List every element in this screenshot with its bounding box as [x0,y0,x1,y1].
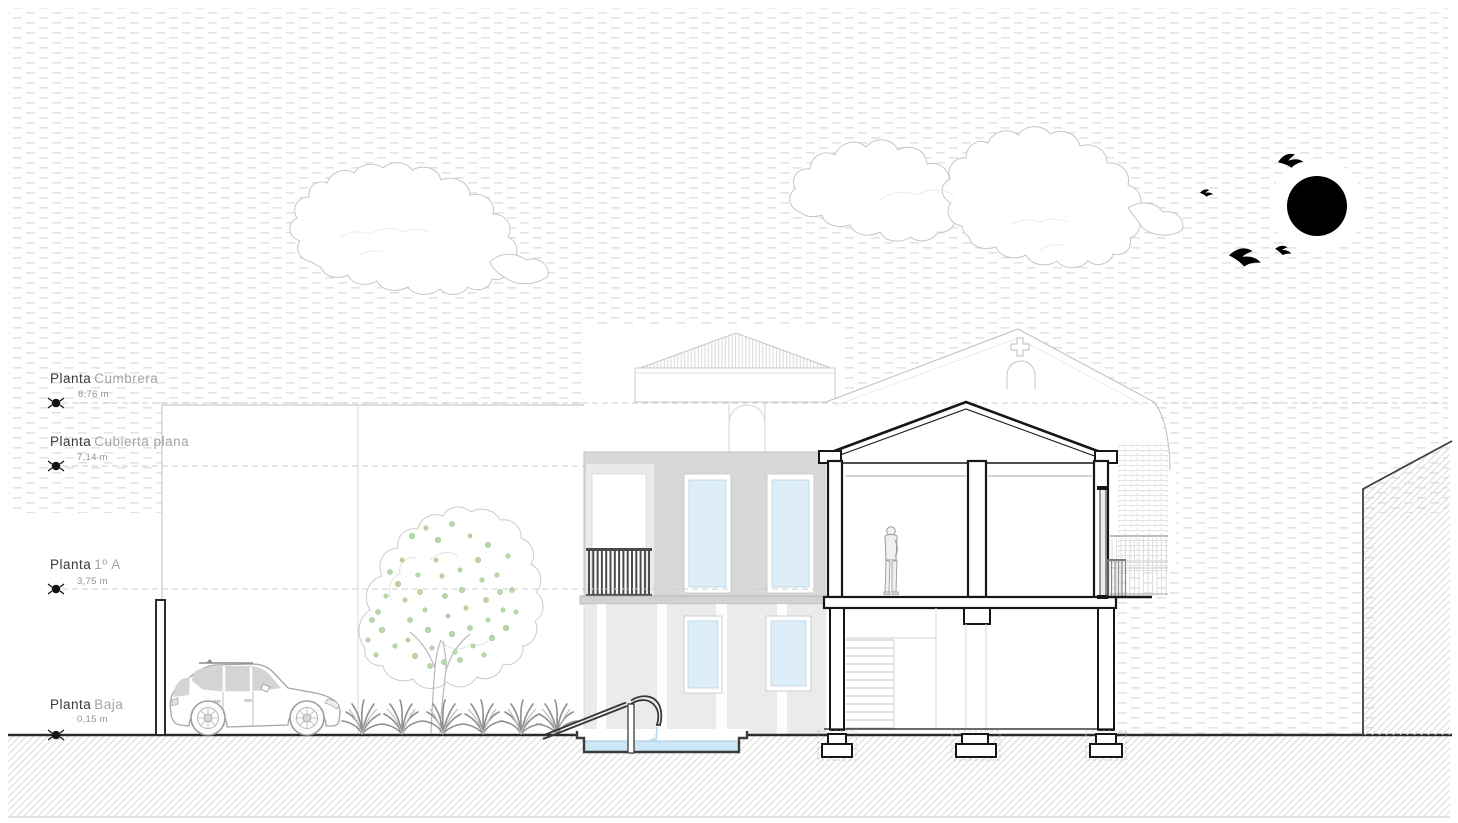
pool-water [585,741,738,752]
level-name: Planta [50,371,91,386]
level-label-baja: PlantaBaja [50,697,123,712]
level-marker [48,584,64,594]
car-wheel [290,701,324,735]
level-elevation: 7,14 m [77,452,108,463]
window [684,616,722,693]
level-qualifier: Baja [94,697,123,712]
car-wheel [191,701,225,735]
level-name: Planta [50,697,91,712]
level-name: Planta [50,434,91,449]
level-qualifier: Cumbrera [94,371,158,386]
level-label-primera: Planta1º A [50,557,121,572]
tower-roof [584,326,842,456]
window [766,616,811,691]
level-label-cumbrera: PlantaCumbrera [50,371,158,386]
facade-building [580,452,830,735]
floor-slab [824,597,1116,608]
level-label-cubierta: PlantaCubierta plana [50,434,189,449]
level-elevation: 0,15 m [77,714,108,725]
architectural-drawing: PlantaCumbrera 8,76 m PlantaCubierta pla… [0,0,1458,823]
level-elevation: 8,76 m [78,389,109,400]
level-name: Planta [50,557,91,572]
fountain-post [628,704,634,753]
level-qualifier: Cubierta plana [94,434,189,449]
drawing-canvas [0,0,1458,823]
floor-slab-band [580,596,830,604]
level-elevation: 3,75 m [77,576,108,587]
window [767,474,814,593]
retaining-wall [156,600,165,735]
terrain [1363,441,1452,735]
level-qualifier: 1º A [94,557,120,572]
window [684,474,731,593]
sun-icon [1270,159,1364,253]
